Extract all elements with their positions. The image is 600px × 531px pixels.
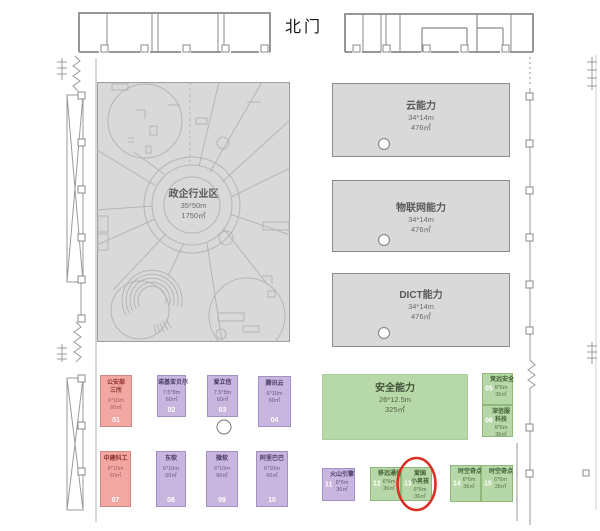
booth-name: 公安部三所 <box>101 376 131 396</box>
booth-area: 60㎡ <box>208 397 237 404</box>
booth-area: 60㎡ <box>101 473 130 480</box>
booth-size: 6*10m <box>257 466 287 473</box>
booth-area: 36㎡ <box>402 494 431 501</box>
booth-04: 腾讯云 6*10m 60㎡ 04 <box>258 376 291 427</box>
booth-name: 诺基亚贝尔 <box>158 376 185 388</box>
zone-area: 1750㎡ <box>97 211 290 221</box>
zone-gov-label: 政企行业区 35*50m 1750㎡ <box>97 188 290 221</box>
right-wall <box>517 57 535 525</box>
zone-title: 安全能力 <box>322 382 468 395</box>
booth-number: 05 <box>485 386 493 393</box>
booth-number: 07 <box>101 497 130 504</box>
booth-size: 7.5*8m <box>208 390 237 397</box>
zone-size: 35*50m <box>97 201 290 211</box>
booth-name: 东软 <box>157 452 185 464</box>
booth-name: 移远通信 <box>371 468 400 479</box>
booth-11: 火山引擎 6*6m 36㎡ 11 <box>322 468 355 501</box>
zigzag-connector <box>74 322 81 362</box>
zigzag-connector <box>73 56 80 91</box>
booth-number: 14 <box>453 480 461 487</box>
booth-area: 60㎡ <box>158 397 185 404</box>
booth-number: 15 <box>484 480 492 487</box>
booth-area: 60㎡ <box>259 398 290 405</box>
booth-name: 微软 <box>207 452 237 464</box>
booth-size: 7.5*8m <box>158 390 185 397</box>
architecture-overlay <box>0 0 600 531</box>
booth-size: 6*10m <box>101 466 130 473</box>
booth-15: 时空奇点 6*6m 36㎡ 15 <box>481 465 513 502</box>
booth-number: 09 <box>207 497 237 504</box>
booth-01: 公安部三所 6*10m 60㎡ 01 <box>100 375 132 427</box>
booth-14: 时空奇点 6*6m 36㎡ 14 <box>450 465 481 502</box>
booth-name: 阿里巴巴 <box>257 452 287 464</box>
zone-dict-label: DICT能力 34*14m 476㎡ <box>332 289 510 322</box>
zigzag-connector <box>528 360 535 388</box>
booth-number: 03 <box>208 407 237 414</box>
zone-title: 政企行业区 <box>97 188 290 201</box>
zone-size: 34*14m <box>332 215 510 225</box>
aisle-circle <box>217 420 231 434</box>
booth-name: 火山引擎 <box>323 469 354 480</box>
north-rooms-right <box>345 14 533 52</box>
booth-area: 36㎡ <box>323 487 354 494</box>
zone-iot-label: 物联网能力 34*14m 476㎡ <box>332 202 510 235</box>
booth-name: 中建科工 <box>101 452 130 464</box>
exhibition-floor-plan: 政企行业区 35*50m 1750㎡ 云能力 34*14m 476㎡ 物联网能力… <box>0 0 600 531</box>
zone-size: 26*12.5m <box>322 395 468 405</box>
zone-size: 34*14m <box>332 302 510 312</box>
booth-name: 爱立信 <box>208 376 237 388</box>
zone-cloud-label: 云能力 34*14m 476㎡ <box>332 100 510 133</box>
zone-area: 325㎡ <box>322 405 468 415</box>
booth-number: 08 <box>157 497 185 504</box>
zone-size: 34*14m <box>332 113 510 123</box>
zone-area: 476㎡ <box>332 312 510 322</box>
zone-area: 476㎡ <box>332 123 510 133</box>
booth-05: 竞远安全 6*6m 36㎡ 05 <box>482 373 513 405</box>
booth-07: 中建科工 6*10m 60㎡ 07 <box>100 451 131 507</box>
zone-title: 云能力 <box>332 100 510 113</box>
zone-security-label: 安全能力 26*12.5m 325㎡ <box>322 382 468 415</box>
left-truss-top <box>67 56 83 318</box>
booth-02: 诺基亚贝尔 7.5*8m 60㎡ 02 <box>157 375 186 417</box>
booth-number: 06 <box>485 418 493 425</box>
booth-size: 6*10m <box>259 391 290 398</box>
booth-number: 13 <box>404 481 412 488</box>
booth-name: 竞远安全 <box>483 374 512 385</box>
booth-06: 深信服科技 6*6m 36㎡ 06 <box>482 405 513 437</box>
booth-03: 爱立信 7.5*8m 60㎡ 03 <box>207 375 238 417</box>
north-rooms-left <box>79 13 270 52</box>
booth-area: 60㎡ <box>207 473 237 480</box>
booth-size: 6*10m <box>207 466 237 473</box>
zone-title: DICT能力 <box>332 289 510 302</box>
booth-area: 60㎡ <box>101 405 131 412</box>
booth-size: 6*6m <box>402 487 431 494</box>
booth-name: 时空奇点 <box>451 466 480 477</box>
booth-number: 12 <box>373 481 381 488</box>
booth-number: 10 <box>257 497 287 504</box>
zone-title: 物联网能力 <box>332 202 510 215</box>
left-truss-bottom <box>67 322 83 510</box>
right-wall-columns <box>526 93 589 477</box>
booth-area: 36㎡ <box>483 432 512 439</box>
north-gate-label: 北门 <box>285 13 323 37</box>
booth-09: 微软 6*10m 60㎡ 09 <box>206 451 238 507</box>
booth-size: 6*10m <box>101 398 131 405</box>
booth-10: 阿里巴巴 6*10m 60㎡ 10 <box>256 451 288 507</box>
booth-name: 腾讯云 <box>259 377 290 389</box>
booth-number: 02 <box>158 407 185 414</box>
booth-area: 60㎡ <box>257 473 287 480</box>
booth-number: 01 <box>101 417 131 424</box>
booth-size: 6*6m <box>483 425 512 432</box>
left-wall-columns <box>78 92 85 475</box>
booth-13-highlighted: 爱国小男孩 6*6m 36㎡ 13 <box>401 467 432 501</box>
booth-08: 东软 6*10m 60㎡ 08 <box>156 451 186 507</box>
booth-area: 36㎡ <box>483 392 512 399</box>
booth-size: 6*10m <box>157 466 185 473</box>
zone-area: 476㎡ <box>332 225 510 235</box>
booth-number: 04 <box>259 417 290 424</box>
booth-12: 移远通信 6*6m 36㎡ 12 <box>370 467 401 501</box>
booth-number: 11 <box>325 481 332 488</box>
booth-name: 时空奇点 <box>482 466 512 477</box>
booth-area: 60㎡ <box>157 473 185 480</box>
